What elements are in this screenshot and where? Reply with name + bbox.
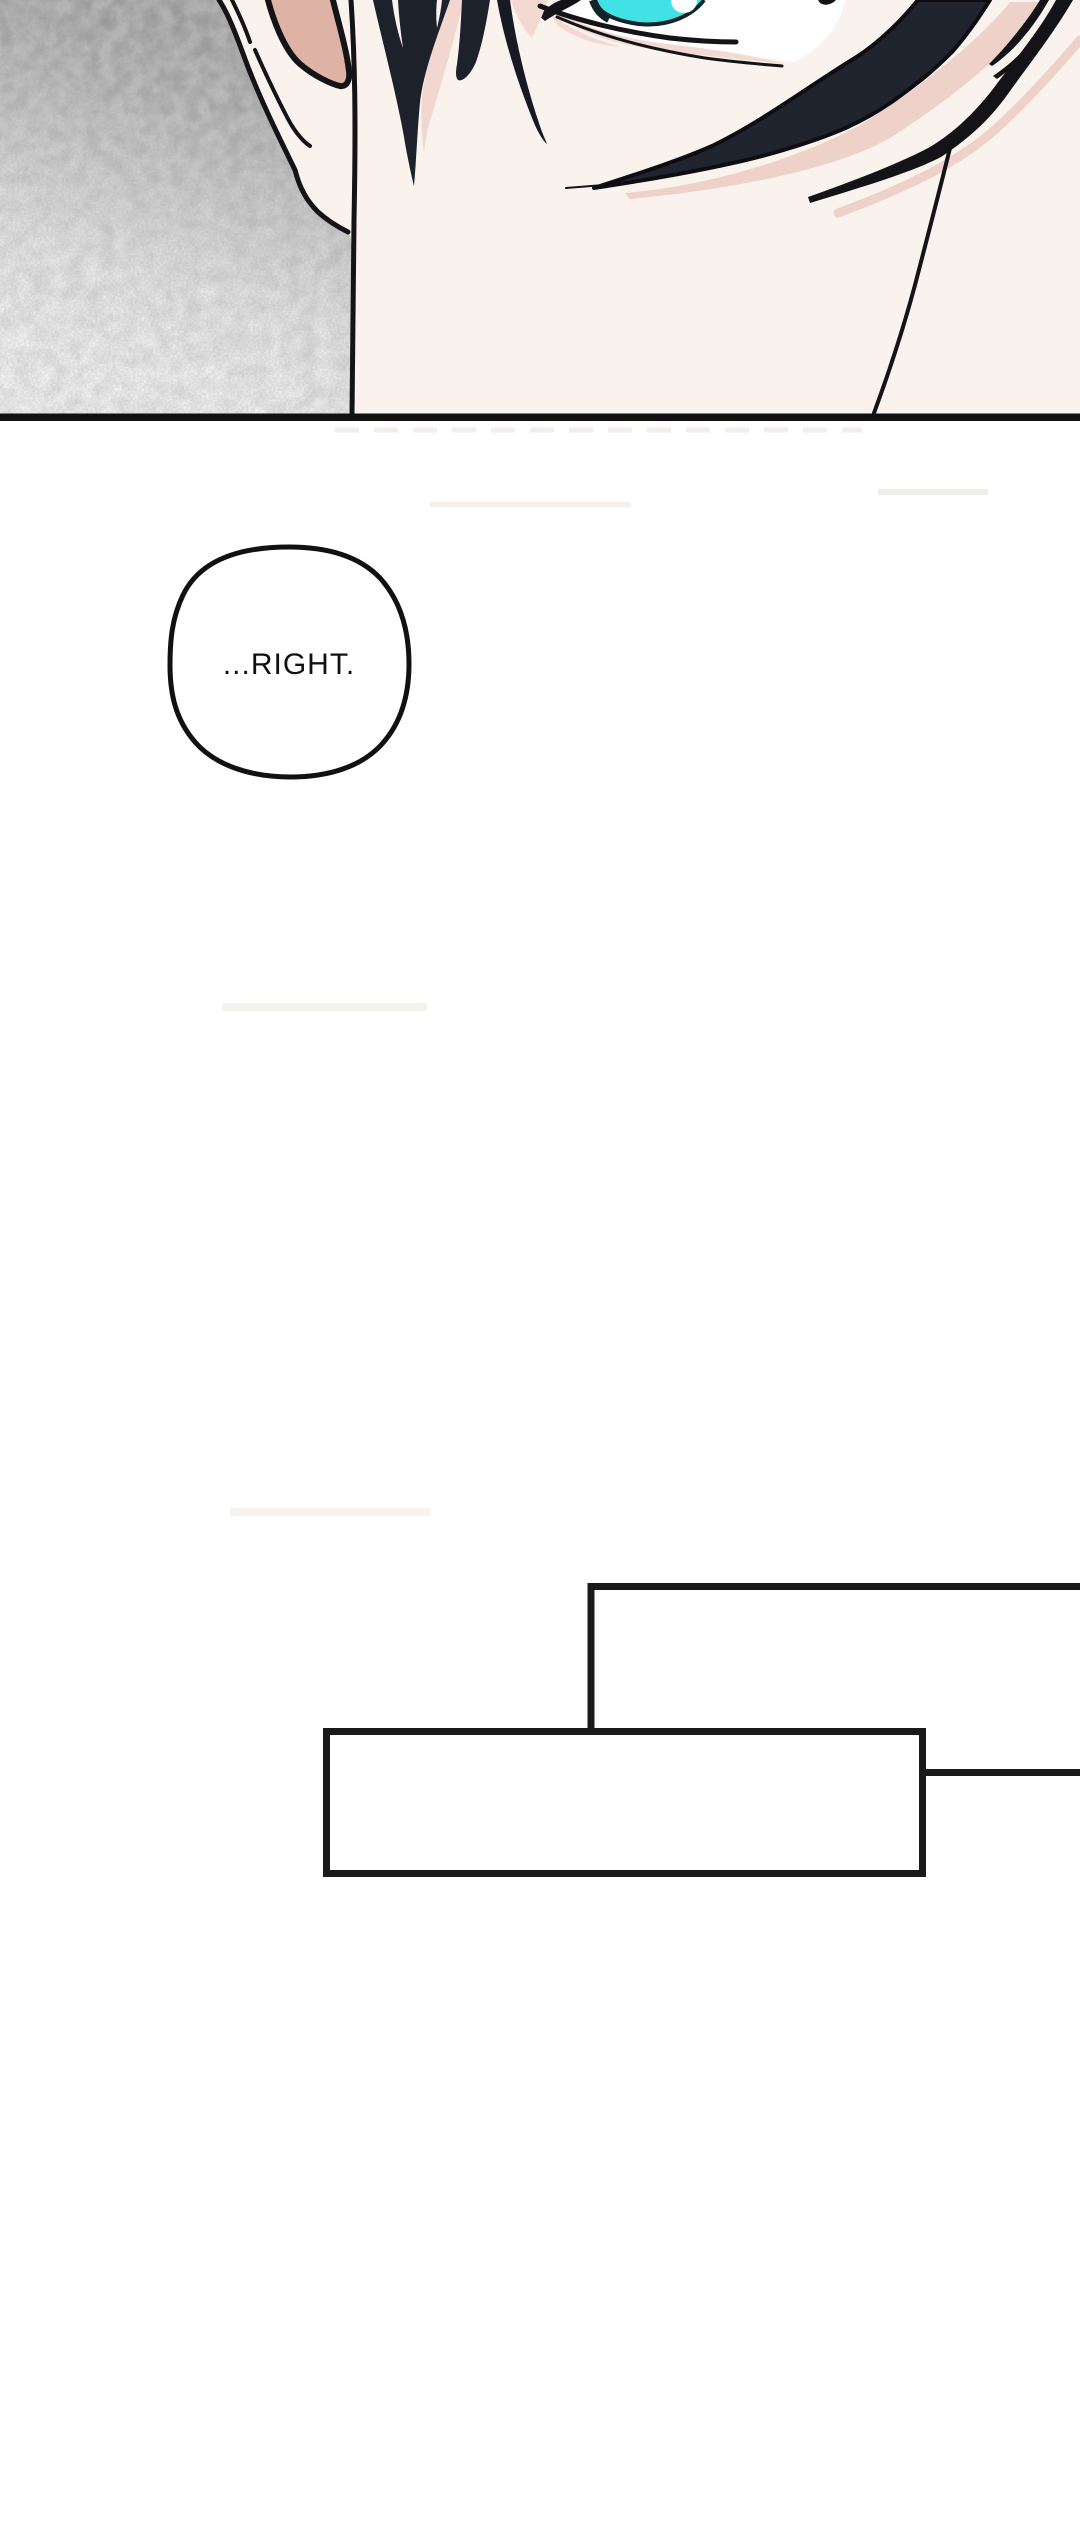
svg-text:...RIGHT.: ...RIGHT. [223, 648, 355, 681]
